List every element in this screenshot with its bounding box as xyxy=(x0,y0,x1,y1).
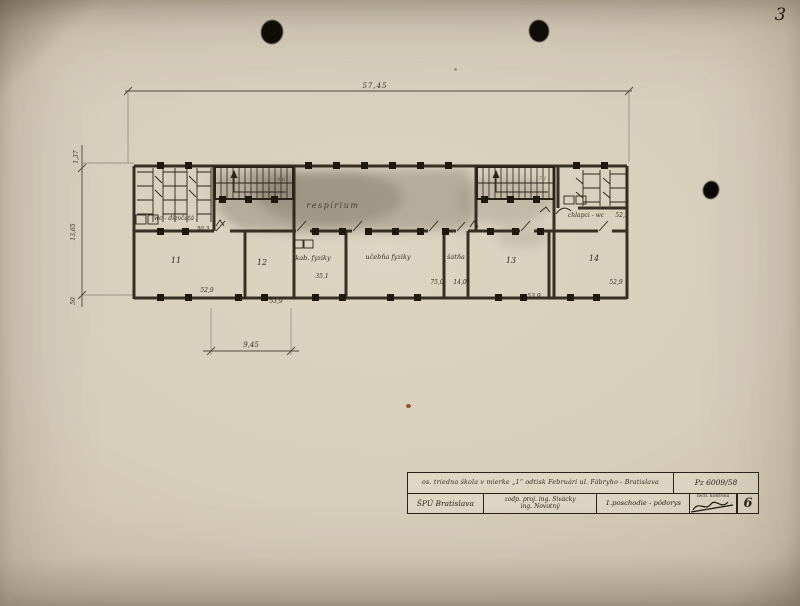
dim-left-main: 13,65 xyxy=(70,223,77,240)
plan-number: Pz 6009/58 xyxy=(674,473,758,493)
room-13-label: 13 xyxy=(506,256,516,265)
dim-overall-width: 57,45 xyxy=(362,82,387,90)
room-kab-area: 35,1 xyxy=(315,273,328,280)
corridor-smudge xyxy=(215,167,553,247)
paper-speck xyxy=(454,68,457,71)
organization: ŠPÚ Bratislava xyxy=(408,494,484,514)
title-block-row2: ŠPÚ Bratislava zodp. proj. ing. Sivácky … xyxy=(408,494,758,514)
dim-left-upper: 1,37 xyxy=(73,150,80,164)
wc-right-area: 52,9 xyxy=(615,212,629,219)
designer-line1: zodp. proj. ing. Sivácky xyxy=(505,496,576,503)
room-11-label: 11 xyxy=(171,256,181,265)
dim-left-lower: 50 xyxy=(70,297,77,305)
ink-blot-left xyxy=(259,18,285,45)
room-ucebna-area: 75,0 xyxy=(430,279,444,286)
project-title: os. triedna škola v mierke „1“ odtisk Fe… xyxy=(408,473,674,493)
room-13-area: 53,9 xyxy=(527,293,541,300)
wc-left-stalls xyxy=(137,168,211,222)
room-kab-label: kab. fyziky xyxy=(295,254,331,262)
wc-right-label: chlapci - wc xyxy=(568,212,605,219)
room-11-area: 52,9 xyxy=(200,287,214,294)
room-14-area: 52,9 xyxy=(609,279,623,286)
room-14-label: 14 xyxy=(589,254,599,263)
wc-left-label: wc - dievčatá xyxy=(154,215,194,222)
signature-icon xyxy=(690,496,737,514)
room-ucebna-label: učebňa fyziky xyxy=(365,253,410,261)
ink-blot-right xyxy=(528,19,550,43)
room-12-label: 12 xyxy=(257,258,267,267)
stair-right-note: 17,1 xyxy=(535,176,546,182)
corridor-label: respírium xyxy=(307,201,360,210)
dim-bay-width: 9,45 xyxy=(243,341,259,349)
check-cell: tech. kontrola xyxy=(690,494,737,514)
rust-speck xyxy=(406,404,411,408)
room-satna-area: 14,0 xyxy=(453,279,467,286)
designer-line2: ing. Novotný xyxy=(521,503,560,510)
stair-left-note: 9,6 xyxy=(277,177,286,183)
room-satna-label: šatňa xyxy=(447,253,465,261)
door-dim-note: 50,3 xyxy=(197,226,210,232)
room-12-area: 53,9 xyxy=(269,298,283,305)
title-block: os. triedna škola v mierke „1“ odtisk Fe… xyxy=(407,472,759,514)
drawing-title: 1.poschodie - pôdorys xyxy=(597,494,690,514)
title-block-row1: os. triedna škola v mierke „1“ odtisk Fe… xyxy=(408,473,758,494)
sheet-number: 6 xyxy=(737,494,758,514)
scanned-drawing-sheet: 3 xyxy=(0,0,800,606)
designer-cell: zodp. proj. ing. Sivácky ing. Novotný xyxy=(484,494,598,514)
floor-plan-drawing: 57,45 9,45 1,37 13,65 50 respírium wc - … xyxy=(0,0,800,606)
ink-blot-side xyxy=(701,179,721,201)
